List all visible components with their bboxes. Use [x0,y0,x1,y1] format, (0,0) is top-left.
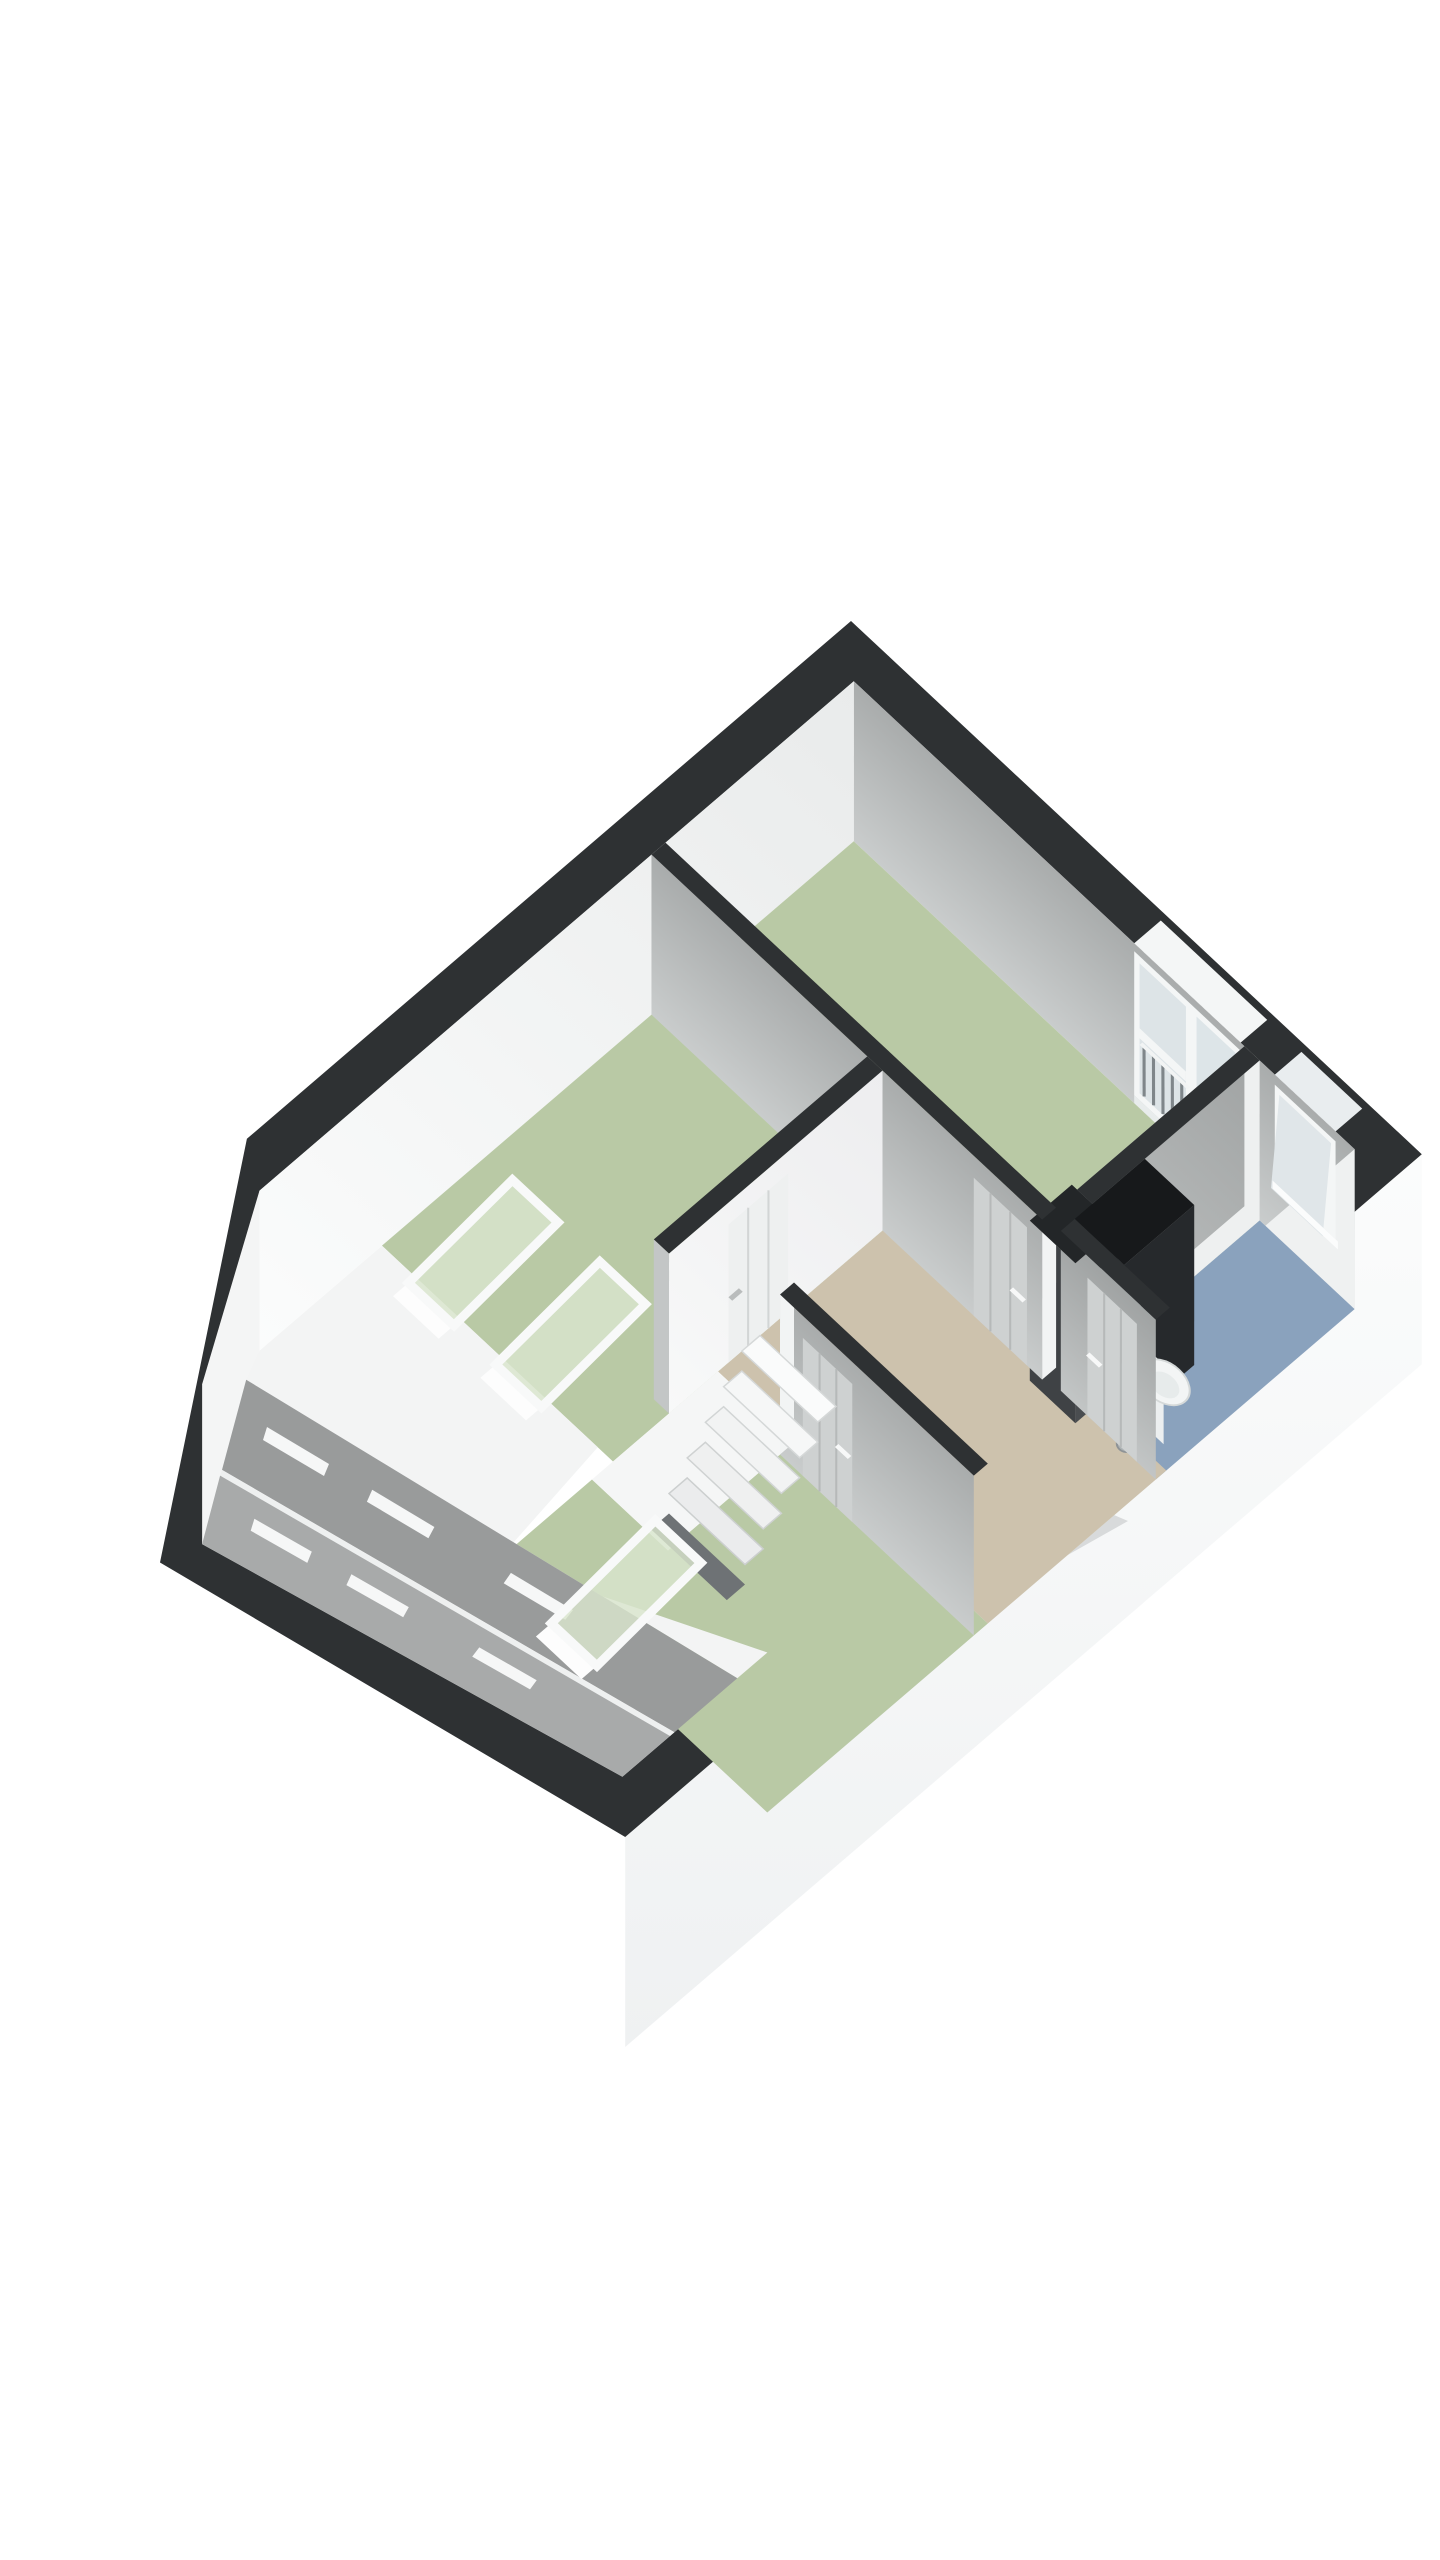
interior-3d-group [32,658,1440,1936]
floor-plan-canvas [0,0,1440,2560]
floor-plan-svg [0,0,1440,2560]
